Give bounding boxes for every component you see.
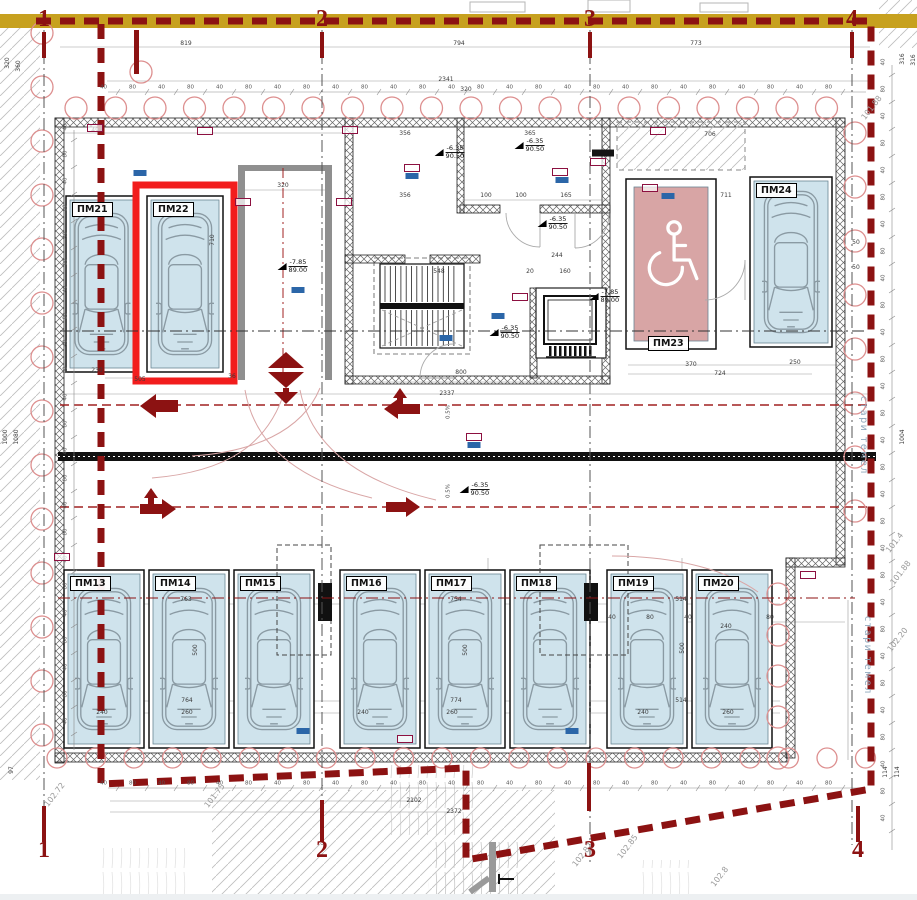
floor-plan-canvas: ПМ21ПМ22ПМ23ПМ24ПМ13ПМ14ПМ15ПМ16ПМ17ПМ18… xyxy=(0,0,917,900)
arrow-right-icon xyxy=(386,497,420,517)
parking-stall xyxy=(692,570,772,748)
equipment-room xyxy=(536,288,606,358)
parking-stall xyxy=(234,570,314,748)
ramp-shaft xyxy=(238,165,332,380)
parking-stall xyxy=(607,570,687,748)
canvas-edge xyxy=(0,894,917,900)
arrow-right-icon xyxy=(140,499,176,519)
hatched-shaft-zone xyxy=(617,122,745,170)
parking-stall xyxy=(425,570,505,748)
ramp-arrow-icon xyxy=(268,352,304,368)
plan-drawing-svg xyxy=(0,0,917,900)
turning-radius-arcs xyxy=(152,388,758,592)
staircase xyxy=(374,258,470,354)
parking-stall xyxy=(626,179,716,349)
offsite-structures xyxy=(470,0,748,12)
parking-stall xyxy=(510,570,590,748)
arrow-left-icon xyxy=(140,394,178,418)
parking-stall xyxy=(750,177,832,347)
parking-stall xyxy=(340,570,420,748)
ramp-arrow-icon xyxy=(268,372,304,388)
ramp-arrow-icon xyxy=(274,392,298,404)
parking-stall xyxy=(136,185,234,381)
parking-stall xyxy=(149,570,229,748)
